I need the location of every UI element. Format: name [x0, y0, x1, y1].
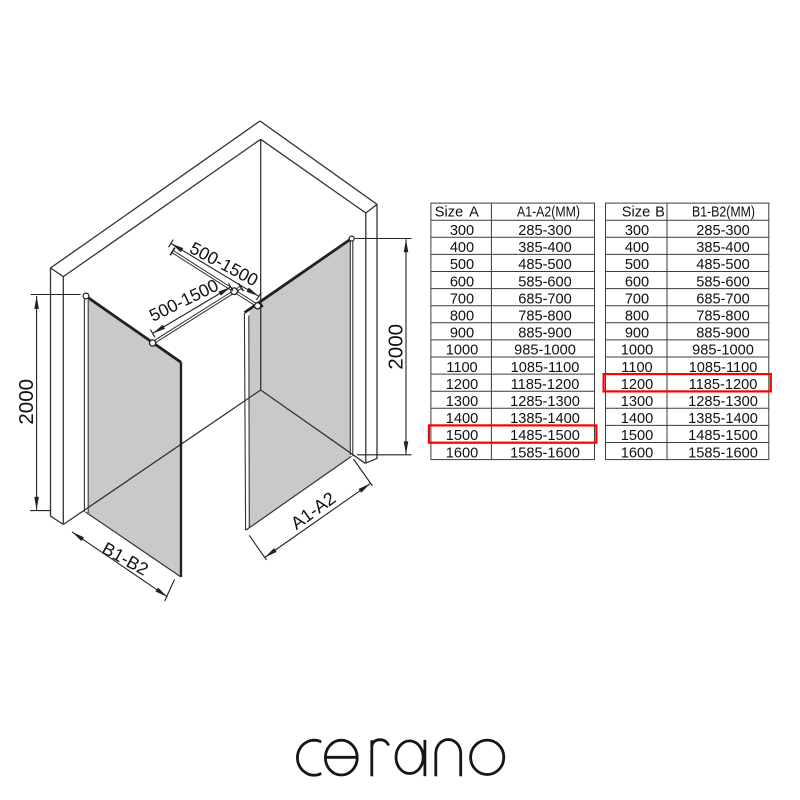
svg-text:500: 500: [450, 257, 474, 273]
svg-text:Size: Size: [435, 205, 463, 221]
svg-text:700: 700: [625, 291, 649, 307]
svg-text:A1-A2(MM): A1-A2(MM): [517, 205, 580, 221]
svg-text:800: 800: [625, 309, 649, 325]
svg-text:885-900: 885-900: [518, 326, 572, 342]
svg-text:400: 400: [625, 240, 649, 256]
svg-text:285-300: 285-300: [518, 223, 572, 239]
svg-text:Size: Size: [622, 205, 650, 221]
svg-text:900: 900: [450, 326, 474, 342]
svg-text:1285-1300: 1285-1300: [510, 394, 580, 410]
svg-text:300: 300: [625, 223, 649, 239]
svg-text:600: 600: [625, 274, 649, 290]
svg-text:B: B: [655, 205, 665, 221]
svg-text:1500: 1500: [621, 428, 653, 444]
svg-text:785-800: 785-800: [696, 309, 750, 325]
svg-text:700: 700: [450, 291, 474, 307]
svg-text:600: 600: [450, 274, 474, 290]
svg-text:1585-1600: 1585-1600: [510, 445, 580, 461]
svg-text:2000: 2000: [384, 324, 407, 370]
svg-text:385-400: 385-400: [696, 240, 750, 256]
svg-text:1285-1300: 1285-1300: [688, 394, 758, 410]
svg-text:385-400: 385-400: [518, 240, 572, 256]
svg-text:2000: 2000: [15, 379, 38, 425]
svg-text:A: A: [469, 205, 479, 221]
svg-text:785-800: 785-800: [518, 309, 572, 325]
svg-text:1000: 1000: [621, 343, 653, 359]
svg-text:1300: 1300: [446, 394, 478, 410]
svg-text:985-1000: 985-1000: [514, 343, 576, 359]
svg-text:1485-1500: 1485-1500: [688, 428, 758, 444]
svg-text:885-900: 885-900: [696, 326, 750, 342]
svg-text:285-300: 285-300: [696, 223, 750, 239]
svg-text:1300: 1300: [621, 394, 653, 410]
svg-text:1400: 1400: [621, 411, 653, 427]
svg-text:400: 400: [450, 240, 474, 256]
svg-text:800: 800: [450, 309, 474, 325]
svg-text:1585-1600: 1585-1600: [688, 445, 758, 461]
svg-text:1200: 1200: [446, 377, 478, 393]
svg-text:1385-1400: 1385-1400: [688, 411, 758, 427]
svg-text:985-1000: 985-1000: [692, 343, 754, 359]
svg-text:1185-1200: 1185-1200: [511, 377, 580, 393]
svg-text:1085-1100: 1085-1100: [511, 360, 580, 376]
svg-text:1000: 1000: [446, 343, 478, 359]
svg-text:585-600: 585-600: [518, 274, 572, 290]
svg-text:685-700: 685-700: [696, 291, 750, 307]
svg-text:500-1500: 500-1500: [146, 275, 222, 326]
svg-text:1100: 1100: [446, 360, 477, 376]
svg-text:500: 500: [625, 257, 649, 273]
svg-text:900: 900: [625, 326, 649, 342]
svg-text:1600: 1600: [621, 445, 653, 461]
svg-text:485-500: 485-500: [696, 257, 750, 273]
svg-text:485-500: 485-500: [518, 257, 572, 273]
svg-text:300: 300: [450, 223, 474, 239]
svg-text:585-600: 585-600: [696, 274, 750, 290]
svg-text:1600: 1600: [446, 445, 478, 461]
svg-text:685-700: 685-700: [518, 291, 572, 307]
svg-text:B1-B2(MM): B1-B2(MM): [692, 205, 755, 221]
